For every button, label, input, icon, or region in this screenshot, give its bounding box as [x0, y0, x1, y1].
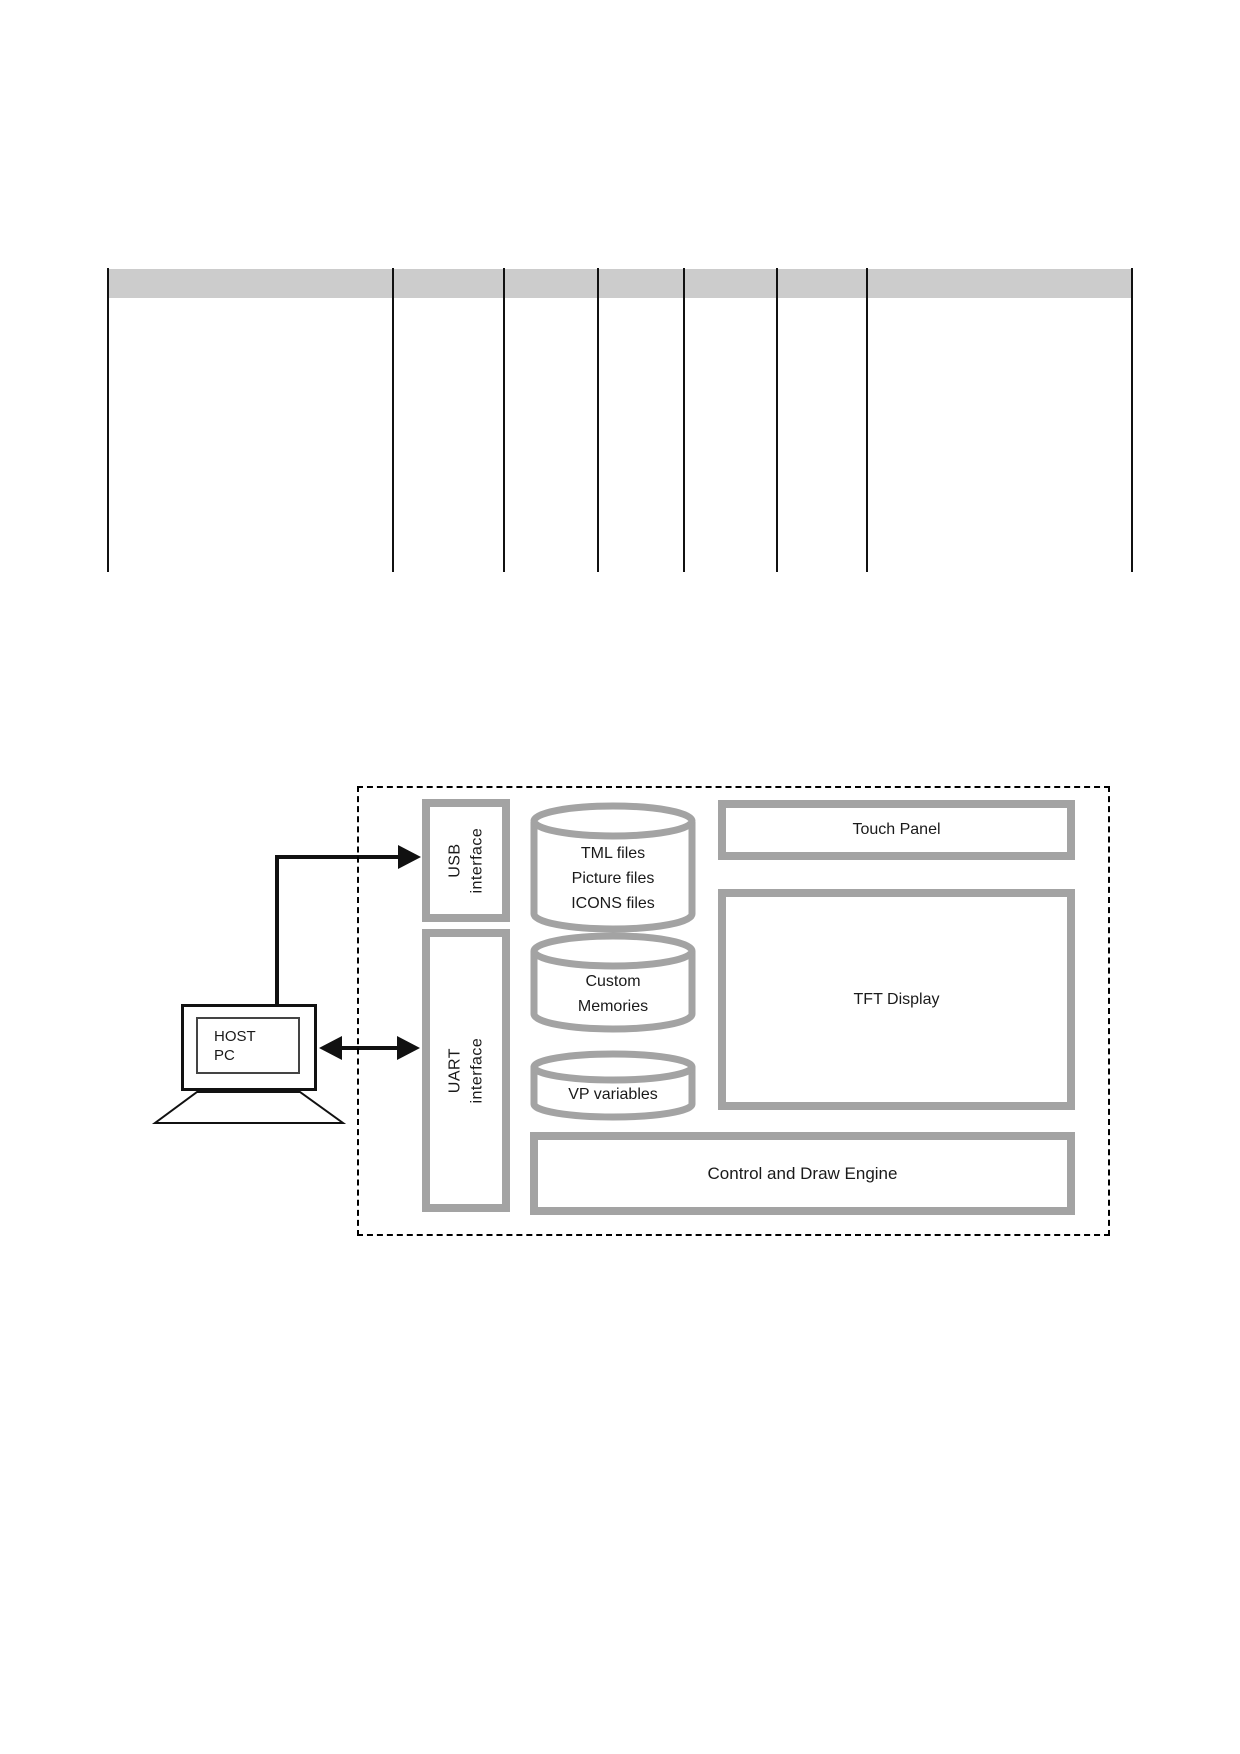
touch-panel-label: Touch Panel — [852, 821, 940, 839]
cylinder-text-line: Custom — [585, 969, 640, 994]
tml-files-label: TML files Picture files ICONS files — [530, 802, 696, 937]
control-draw-engine-label: Control and Draw Engine — [708, 1164, 898, 1184]
usb-interface-box: USB interface — [422, 799, 510, 922]
uart-interface-label: UART interface — [444, 1038, 487, 1104]
custom-memories-cylinder: Custom Memories — [530, 932, 696, 1037]
usb-label-line2: interface — [466, 828, 488, 894]
vp-variables-label: VP variables — [530, 1050, 696, 1124]
cylinder-text-line: Picture files — [572, 866, 655, 891]
host-pc-monitor-icon: HOST PC — [181, 1004, 317, 1091]
table-column-divider — [683, 268, 685, 572]
document-page: HOST PC USB interface UART interface TML… — [0, 0, 1240, 1754]
uart-label-line1: UART — [444, 1038, 466, 1104]
table-column-divider — [776, 268, 778, 572]
uart-left-arrowhead-icon — [319, 1036, 342, 1060]
tml-files-cylinder: TML files Picture files ICONS files — [530, 802, 696, 937]
table-column-divider — [597, 268, 599, 572]
usb-interface-label: USB interface — [444, 828, 487, 894]
control-draw-engine-box: Control and Draw Engine — [530, 1132, 1075, 1215]
cylinder-text-line: Memories — [578, 994, 648, 1019]
monitor-stand-icon — [155, 1092, 343, 1123]
tft-display-box: TFT Display — [718, 889, 1075, 1110]
table-column-divider — [392, 268, 394, 572]
table-column-divider — [1131, 268, 1133, 572]
table-header-row — [108, 269, 1133, 298]
vp-variables-cylinder: VP variables — [530, 1050, 696, 1124]
table-column-divider — [866, 268, 868, 572]
cylinder-text-line: TML files — [581, 841, 645, 866]
host-pc-label-line2: PC — [214, 1046, 298, 1065]
table-column-divider — [503, 268, 505, 572]
uart-label-line2: interface — [466, 1038, 488, 1104]
host-pc-screen: HOST PC — [196, 1017, 300, 1074]
uart-interface-box: UART interface — [422, 929, 510, 1212]
host-pc-label-line1: HOST — [214, 1027, 298, 1046]
tft-display-label: TFT Display — [854, 991, 940, 1009]
custom-memories-label: Custom Memories — [530, 932, 696, 1037]
touch-panel-box: Touch Panel — [718, 800, 1075, 860]
cylinder-text-line: ICONS files — [571, 891, 655, 916]
table-column-divider — [107, 268, 109, 572]
empty-table — [107, 268, 1133, 572]
system-boundary: USB interface UART interface TML files P… — [357, 786, 1110, 1236]
cylinder-text-line: VP variables — [568, 1082, 658, 1107]
usb-label-line1: USB — [444, 828, 466, 894]
